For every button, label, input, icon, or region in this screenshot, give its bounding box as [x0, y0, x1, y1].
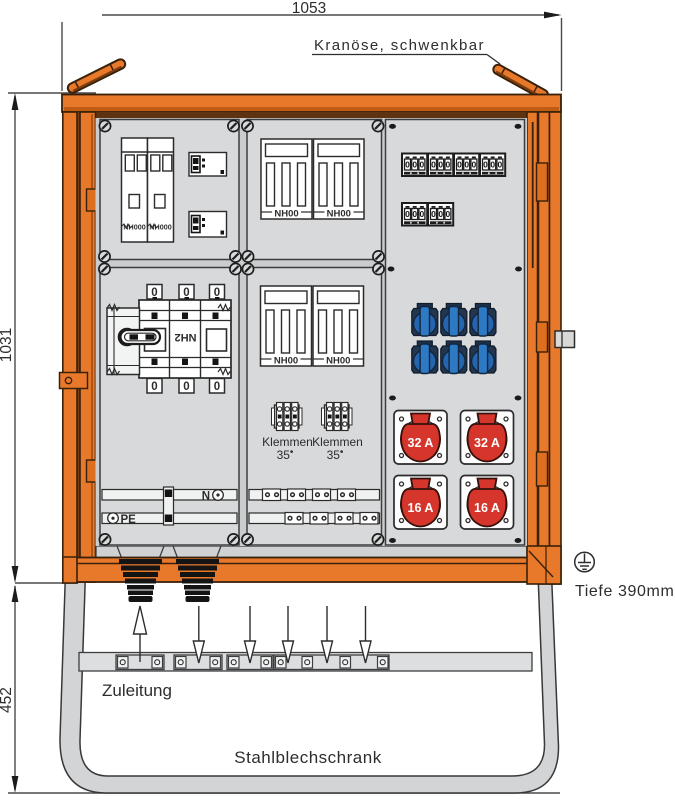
- svg-text:16 A: 16 A: [474, 501, 500, 515]
- svg-text:NH00: NH00: [274, 209, 298, 220]
- svg-text:0: 0: [183, 381, 189, 393]
- svg-text:NH00: NH00: [274, 356, 298, 367]
- svg-text:NH2: NH2: [174, 331, 196, 343]
- svg-text:16 A: 16 A: [408, 501, 434, 515]
- svg-text:Kranöse, schwenkbar: Kranöse, schwenkbar: [314, 37, 485, 54]
- svg-text:0: 0: [214, 381, 220, 393]
- svg-text:NH00: NH00: [326, 356, 350, 367]
- svg-text:N: N: [202, 491, 210, 503]
- svg-text:Klemmen: Klemmen: [262, 435, 313, 449]
- svg-text:32 A: 32 A: [474, 436, 500, 450]
- svg-text:452: 452: [0, 687, 15, 713]
- svg-text:Zuleitung: Zuleitung: [102, 681, 172, 700]
- svg-text:NH00: NH00: [327, 209, 351, 220]
- svg-text:Tiefe 390mm: Tiefe 390mm: [575, 583, 674, 600]
- svg-text:PE: PE: [121, 514, 137, 526]
- svg-text:Stahlblechschrank: Stahlblechschrank: [234, 748, 381, 767]
- svg-text:1031: 1031: [0, 328, 15, 362]
- svg-text:1053: 1053: [292, 0, 326, 17]
- svg-text:0: 0: [151, 381, 157, 393]
- svg-text:32 A: 32 A: [408, 436, 434, 450]
- svg-text:Klemmen: Klemmen: [312, 435, 363, 449]
